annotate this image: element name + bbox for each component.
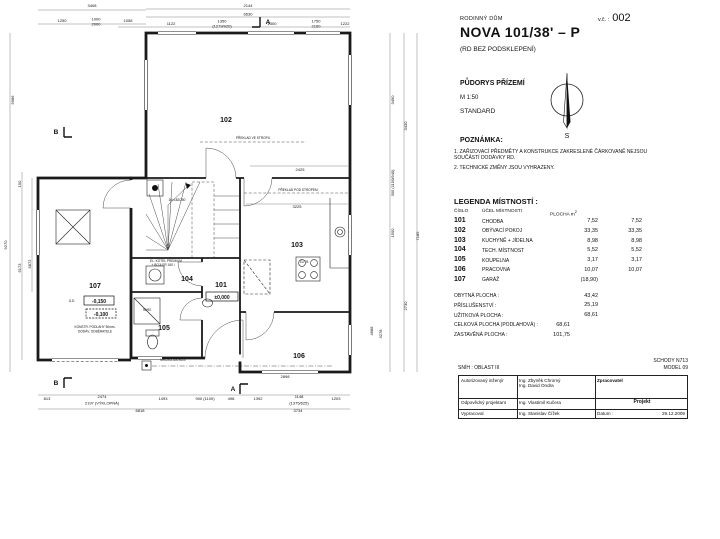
total-row: OBYTNÁ PLOCHA :43,42	[454, 292, 654, 302]
dimension-lines	[10, 9, 417, 409]
room-area: (18,90)	[581, 277, 598, 283]
section-marker-label: B	[54, 129, 59, 136]
dimension-label: 2197 (VÝKLOPNÁ)	[85, 401, 120, 406]
dimension-label: 3408	[88, 3, 98, 8]
dimension-label: 1148	[295, 394, 304, 399]
total-value: 68,61	[556, 322, 570, 328]
level-mark-label: -0,150	[92, 299, 106, 305]
responsible-designer-label: Odpovědný projektant	[459, 398, 517, 409]
room-purpose: GARÁŽ	[482, 277, 499, 283]
dimension-label: 3225	[293, 204, 303, 209]
room-purpose: KUCHYNĚ + JÍDELNA	[482, 238, 533, 244]
authorized-engineer-label: Autorizovaný inženýr	[459, 376, 517, 398]
annotation-label: PŘEKLAD VE STROPU	[236, 135, 271, 140]
room-area: 3,17	[587, 257, 598, 263]
room-number: 103	[454, 237, 466, 244]
total-row: UŽITKOVÁ PLOCHA :68,61	[454, 312, 654, 322]
stairs-model-label: SCHODY N713 MODEL 09	[653, 358, 688, 371]
room-area: 8,98	[587, 238, 598, 244]
room-number: 101	[454, 217, 466, 224]
snow-zone-label: SNÍH : OBLAST III	[458, 365, 499, 371]
dimension-label: 1392	[254, 396, 264, 401]
wall-openings	[35, 30, 354, 376]
dimension-label: 1203	[332, 396, 342, 401]
dimension-label: 6818	[136, 408, 146, 413]
room-number: 105	[454, 256, 466, 263]
chimney-flue	[152, 185, 158, 191]
room-number: 107	[454, 276, 466, 283]
dimension-label: 2474	[98, 394, 108, 399]
kitchen-sink	[335, 227, 345, 237]
total-label: ZASTAVĚNÁ PLOCHA :	[454, 332, 507, 338]
drawing-sheet: 101102103104105106107±0,000-0,150-0,100Ú…	[0, 0, 720, 539]
room-number-label: 103	[291, 242, 303, 249]
room-purpose: OBÝVACÍ POKOJ	[482, 228, 522, 234]
room-area-total: 7,52	[631, 218, 642, 224]
dimension-label: 1500	[390, 228, 395, 238]
dimension-label: 1058	[124, 18, 134, 23]
engineer-name-2: Ing. David Ondra	[519, 383, 593, 388]
dimension-label: 1122	[167, 21, 176, 26]
page-title: NOVA 101/38' – P	[460, 24, 580, 40]
toilet	[148, 335, 158, 349]
dimension-label: 2000	[92, 22, 102, 27]
dimension-label: 3490	[390, 95, 395, 105]
legend-row: 102OBÝVACÍ POKOJ33,3533,35	[454, 227, 654, 237]
drafted-by-label: Vypracoval	[459, 409, 517, 420]
annotation-label: DODÁV. ODBĚRATELE	[78, 329, 112, 334]
notes-list: 1. ZAŘIZOVACÍ PŘEDMĚTY A KONSTRUKCE ZAKR…	[454, 149, 654, 175]
total-row: ZASTAVĚNÁ PLOCHA :101,75	[454, 331, 654, 341]
room-number-label: 105	[158, 325, 170, 332]
building-type-label: RODINNÝ DŮM	[460, 16, 503, 22]
legend-row: 107GARÁŽ(18,90)	[454, 276, 654, 286]
dimension-label: 4688	[369, 326, 374, 336]
title-panel: RODINNÝ DŮM NOVA 101/38' – P (RD BEZ POD…	[452, 0, 720, 539]
compass-icon: S	[542, 66, 592, 144]
annotation-label: PŘEKLAD POD STROPEM	[278, 187, 318, 192]
dimension-label: 5872	[27, 259, 32, 269]
note-item: 2. TECHNICKÉ ZMĚNY JSOU VYHRAZENY.	[454, 165, 654, 171]
dimension-label: 900 (1100)	[195, 396, 215, 401]
windows	[37, 32, 352, 374]
dimension-label: 2160	[312, 24, 322, 29]
responsible-designer-name: Ing. Vlastimil Kučera	[517, 398, 595, 409]
drawing-scale: M 1:50	[460, 95, 478, 101]
dimension-label: 1222	[341, 21, 351, 26]
room-purpose: KOUPELNA	[482, 258, 509, 264]
room-number: 106	[454, 266, 466, 273]
plan-labels: 101102103104105106107±0,000-0,150-0,100Ú…	[3, 3, 420, 413]
total-value: 101,75	[553, 332, 570, 338]
room-area: 33,35	[584, 228, 598, 234]
notes-heading: POZNÁMKA:	[460, 137, 503, 144]
legend-col-purpose: ÚČEL MÍSTNOSTI	[482, 209, 522, 214]
stairs-type: SCHODY N713	[653, 358, 688, 365]
title-block: Autorizovaný inženýr Ing. Zbyněk Chromý …	[458, 375, 688, 419]
dimension-label: (1279/920)	[212, 24, 232, 29]
room-area-total: 3,17	[631, 257, 642, 263]
level-mark-label: -0,100	[94, 312, 108, 318]
compass-south-label: S	[565, 133, 570, 140]
floor-plan: 101102103104105106107±0,000-0,150-0,100Ú…	[0, 0, 450, 430]
drafted-by-name: Ing. Stanislav Čížek	[517, 409, 595, 420]
dimension-label: 6630	[244, 12, 254, 17]
room-area-total: 8,98	[631, 238, 642, 244]
dimension-label: 300 (1150/940)	[390, 169, 395, 197]
sheet-number-value: 002	[612, 12, 630, 24]
stair-arrow	[186, 183, 192, 189]
area-totals: OBYTNÁ PLOCHA :43,42PŘÍSLUŠENSTVÍ :25,19…	[454, 292, 654, 341]
level-mark-label: ±0,000	[214, 295, 229, 301]
room-number-label: 106	[293, 353, 305, 360]
annotation-label: 16×182/250	[169, 198, 186, 202]
sheet-number-label: v.č. :	[598, 17, 609, 23]
drawing-variant: STANDARD	[460, 108, 495, 115]
dimension-label: 6173	[17, 263, 22, 273]
dimension-label: 150	[17, 180, 22, 187]
dimension-label: 9270	[3, 240, 8, 250]
dimension-label: 2730	[403, 301, 408, 311]
dimension-label: 498	[228, 396, 235, 401]
dimension-label: 1250	[58, 18, 68, 23]
annotation-label: + BOJLER 160 l	[152, 263, 175, 267]
room-area-total: 33,35	[628, 228, 642, 234]
processor-cell: Zpracovatel RD RÝMAŘOV	[595, 376, 689, 398]
room-number: 104	[454, 246, 466, 253]
total-value: 68,61	[584, 312, 598, 318]
total-label: PŘÍSLUŠENSTVÍ :	[454, 303, 496, 309]
total-row: PŘÍSLUŠENSTVÍ :25,19	[454, 302, 654, 312]
dimension-label: 813	[44, 396, 51, 401]
dimension-label: 5986	[10, 95, 15, 105]
legend-row: 105KOUPELNA3,173,17	[454, 256, 654, 266]
staircase	[146, 182, 240, 258]
total-label: OBYTNÁ PLOCHA :	[454, 293, 499, 299]
annotation-label: 90/90	[143, 308, 151, 312]
page-subtitle: (RD BEZ PODSKLEPENÍ)	[460, 46, 536, 53]
note-item: 1. ZAŘIZOVACÍ PŘEDMĚTY A KONSTRUKCE ZAKR…	[454, 149, 654, 161]
total-label: CELKOVÁ PLOCHA (PODLAHOVÁ) :	[454, 322, 538, 328]
section-marker-label: A	[266, 19, 271, 26]
legend-rows: 101CHODBA7,527,52102OBÝVACÍ POKOJ33,3533…	[454, 217, 654, 286]
room-area-total: 10,07	[628, 267, 642, 273]
section-markers	[64, 17, 260, 394]
dimension-label: 2898	[281, 374, 291, 379]
room-number-label: 102	[220, 117, 232, 124]
section-marker-label: A	[231, 386, 236, 393]
legend-heading: LEGENDA MÍSTNOSTÍ :	[454, 197, 538, 206]
date-value: 29.12.2009	[662, 411, 685, 416]
dimension-label: 3430	[403, 121, 408, 131]
date-cell: Datum : 29.12.2009	[595, 409, 689, 420]
room-purpose: PRACOVNA	[482, 267, 510, 273]
annotation-label: ZL/TB	[300, 260, 309, 264]
sheet-number: v.č. :002	[598, 12, 631, 24]
room-number-label: 101	[215, 282, 227, 289]
dimension-label: 2144	[244, 3, 254, 8]
legend-row: 104TECH. MÍSTNOST5,525,52	[454, 246, 654, 256]
legend-row: 101CHODBA7,527,52	[454, 217, 654, 227]
room-area: 10,07	[584, 267, 598, 273]
project-label: Projekt	[595, 398, 689, 409]
room-number: 102	[454, 227, 466, 234]
walls	[38, 33, 350, 372]
section-marker-label: B	[54, 380, 59, 387]
annotation-label: MŘÍŽKA 600×600	[160, 357, 185, 362]
dimension-label: 3734	[294, 408, 304, 413]
legend-row: 106PRACOVNA10,0710,07	[454, 266, 654, 276]
legend-row: 103KUCHYNĚ + JÍDELNA8,988,98	[454, 237, 654, 247]
annotation-label: Ú.D.	[69, 298, 75, 303]
total-value: 43,42	[584, 293, 598, 299]
dimension-label: 1493	[159, 396, 169, 401]
model-number: MODEL 09	[653, 365, 688, 372]
room-area: 5,52	[587, 247, 598, 253]
total-row: CELKOVÁ PLOCHA (PODLAHOVÁ) :68,61	[454, 321, 654, 331]
dimension-label: (1375/625)	[289, 401, 309, 406]
room-purpose: CHODBA	[482, 219, 503, 225]
legend-col-number: ČÍSLO	[454, 209, 468, 214]
dimension-label: 7185	[415, 231, 420, 241]
total-value: 25,19	[584, 302, 598, 308]
total-label: UŽITKOVÁ PLOCHA :	[454, 313, 503, 319]
date-label: Datum :	[597, 411, 613, 416]
room-number-label: 104	[181, 276, 193, 283]
drawing-name: PŮDORYS PŘÍZEMÍ	[460, 80, 525, 87]
room-number-label: 107	[89, 283, 101, 290]
processor-label: Zpracovatel	[597, 378, 623, 383]
annotation-label: KONSTR. PODLAHY 50mm-	[74, 325, 115, 329]
room-area: 7,52	[587, 218, 598, 224]
dimension-label: 2425	[296, 167, 306, 172]
room-area-total: 5,52	[631, 247, 642, 253]
room-purpose: TECH. MÍSTNOST	[482, 248, 524, 254]
authorized-engineer-names: Ing. Zbyněk Chromý Ing. David Ondra	[517, 376, 595, 398]
dimension-label: 3278	[378, 329, 383, 339]
